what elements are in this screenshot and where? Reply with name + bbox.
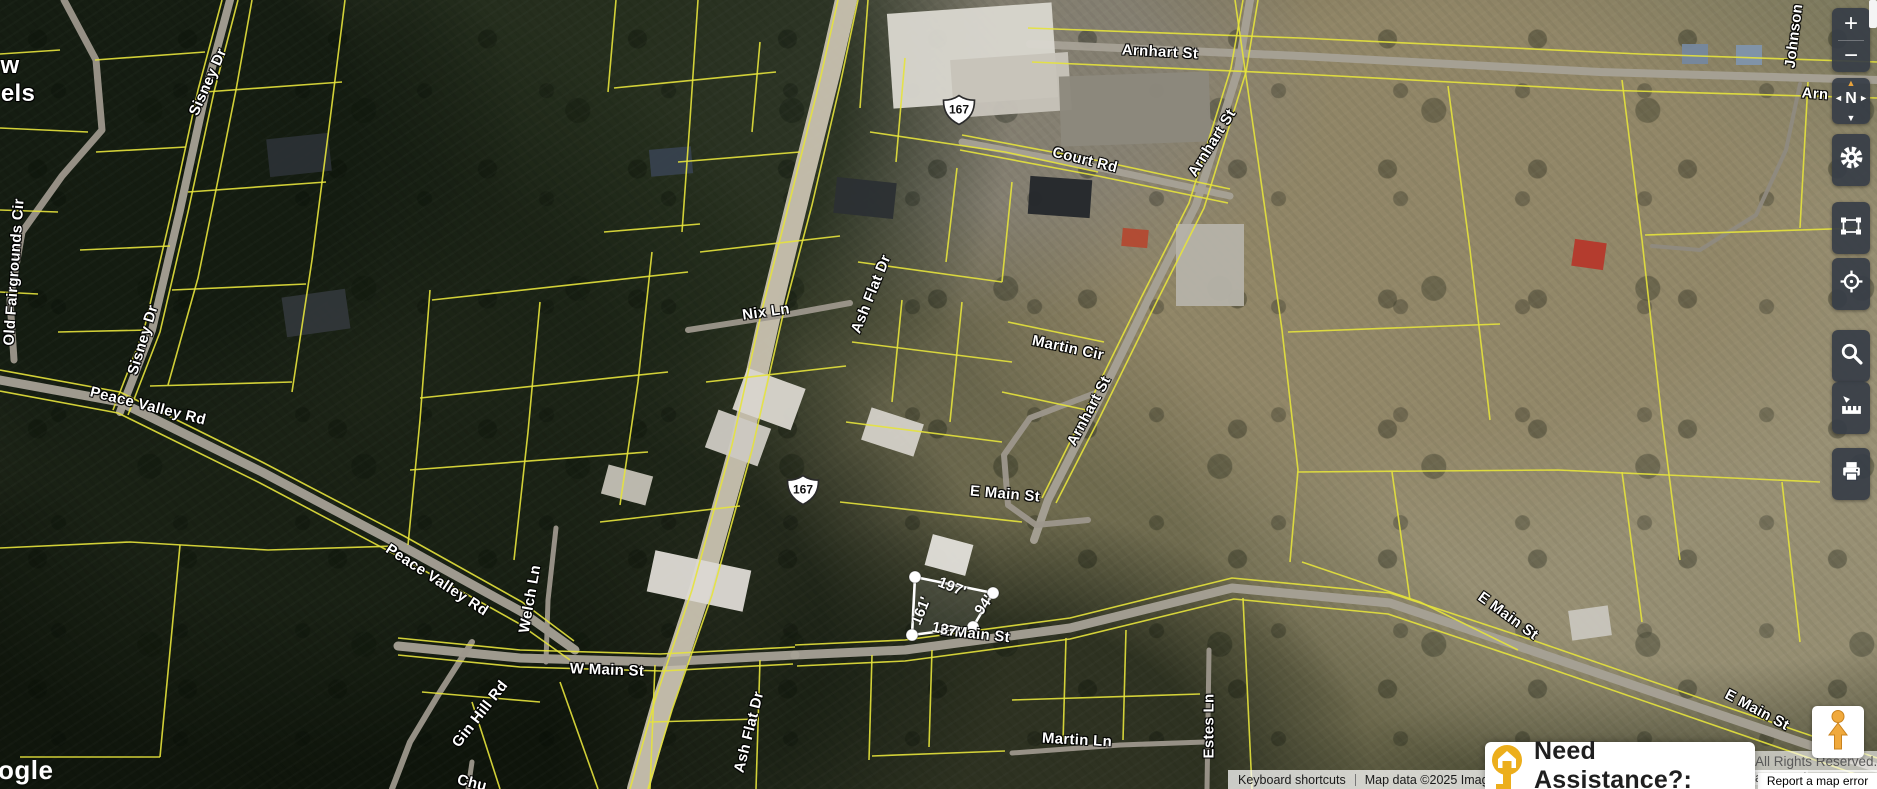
pan-east-arrow-icon[interactable]: ► [1859, 93, 1868, 103]
measure-button[interactable] [1832, 382, 1870, 434]
parcel-vertex-handle[interactable] [967, 621, 979, 633]
ruler-icon [1839, 393, 1864, 423]
zoom-control: + − [1832, 8, 1870, 72]
select-area-icon [1839, 214, 1863, 243]
locate-button[interactable] [1832, 258, 1870, 310]
need-assistance-label: Need Assistance?: [1534, 737, 1755, 789]
search-icon [1839, 341, 1864, 371]
google-logo-partial[interactable]: ogle [0, 755, 53, 786]
parcel-vertex-handle[interactable] [906, 629, 918, 641]
pan-north-arrow-icon[interactable]: ▲ [1832, 78, 1870, 88]
gear-icon [1839, 145, 1864, 175]
map-viewport: Arnhart StJohnsonCourt RdArnhart StMarti… [0, 0, 1877, 789]
report-map-error-link[interactable]: Report a map error [1758, 773, 1877, 789]
crosshair-icon [1839, 269, 1864, 299]
pegman-control[interactable] [1812, 706, 1864, 758]
parcel-vertex-handle[interactable] [909, 571, 921, 583]
attribution-divider [1355, 774, 1356, 786]
parcel-vertex-handle[interactable] [987, 587, 999, 599]
zoom-out-button[interactable]: − [1832, 41, 1870, 73]
need-assistance-panel[interactable]: Need Assistance?: [1485, 742, 1755, 789]
map-data-attribution: Map data ©2025 Imag [1365, 773, 1489, 787]
print-button[interactable] [1832, 448, 1870, 500]
compass-pan-control[interactable]: ▲ ◄ N ► ▼ [1832, 78, 1870, 124]
satellite-imagery[interactable] [0, 0, 1877, 789]
key-house-icon [1485, 742, 1528, 789]
pegman-icon [1825, 709, 1851, 756]
pan-south-arrow-icon[interactable]: ▼ [1832, 113, 1870, 123]
keyboard-shortcuts-link[interactable]: Keyboard shortcuts [1238, 773, 1346, 787]
settings-button[interactable] [1832, 134, 1870, 186]
select-area-button[interactable] [1832, 202, 1870, 254]
zoom-in-button[interactable]: + [1832, 8, 1870, 40]
page-scrollbar-fragment[interactable] [1869, 0, 1877, 28]
search-button[interactable] [1832, 330, 1870, 382]
printer-icon [1839, 459, 1864, 489]
